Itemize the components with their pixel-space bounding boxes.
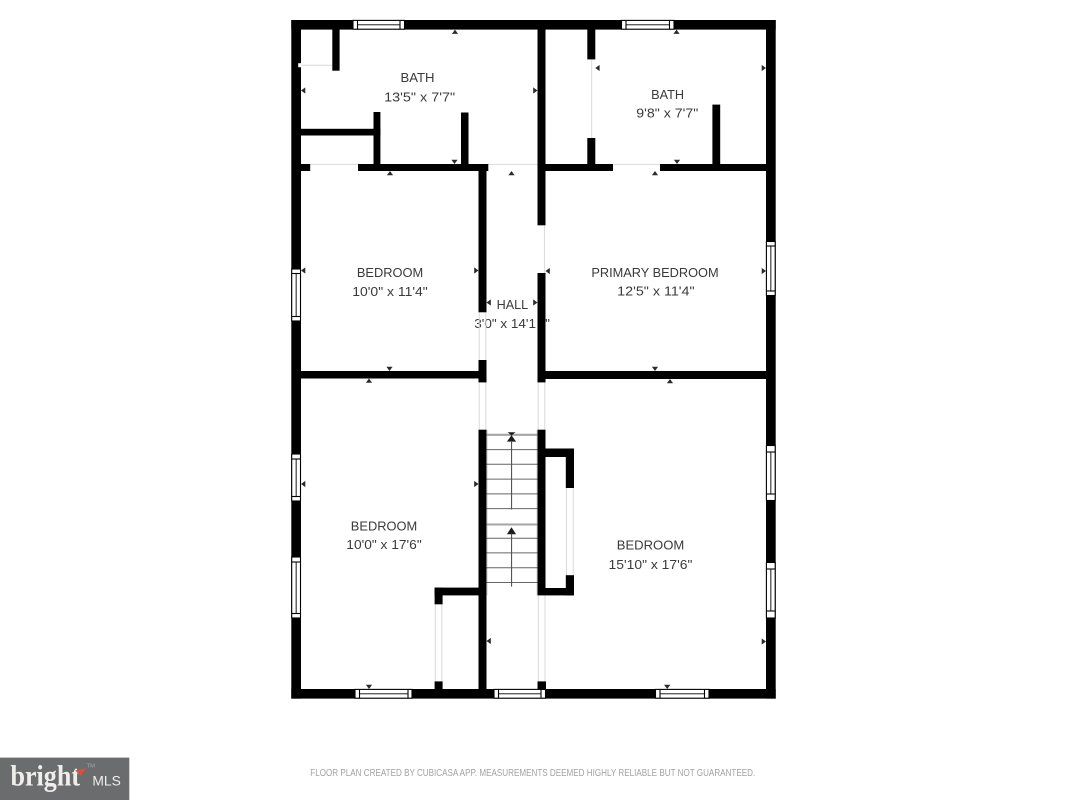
- svg-text:12'5" x 11'4": 12'5" x 11'4": [617, 284, 695, 299]
- svg-text:BATH: BATH: [651, 87, 684, 102]
- svg-text:15'10" x 17'6": 15'10" x 17'6": [609, 557, 693, 572]
- svg-text:MLS: MLS: [92, 773, 121, 789]
- svg-text:9'8" x 7'7": 9'8" x 7'7": [636, 105, 698, 120]
- svg-text:10'0" x 17'6": 10'0" x 17'6": [346, 537, 422, 552]
- svg-text:bright: bright: [11, 760, 81, 793]
- svg-text:TM: TM: [87, 764, 96, 770]
- svg-text:3'0" x 14'1: 3'0" x 14'1: [474, 316, 536, 331]
- svg-text:HALL: HALL: [497, 297, 529, 312]
- svg-text:": ": [545, 316, 550, 331]
- svg-text:13'5" x 7'7": 13'5" x 7'7": [384, 90, 455, 105]
- svg-text:PRIMARY BEDROOM: PRIMARY BEDROOM: [591, 265, 718, 280]
- svg-text:FLOOR PLAN CREATED BY CUBICASA: FLOOR PLAN CREATED BY CUBICASA APP. MEAS…: [310, 768, 755, 779]
- svg-text:BEDROOM: BEDROOM: [357, 265, 423, 280]
- svg-text:BEDROOM: BEDROOM: [617, 538, 685, 553]
- svg-text:BEDROOM: BEDROOM: [351, 519, 417, 534]
- svg-text:10'0" x 11'4": 10'0" x 11'4": [352, 284, 428, 299]
- svg-text:BATH: BATH: [401, 70, 435, 85]
